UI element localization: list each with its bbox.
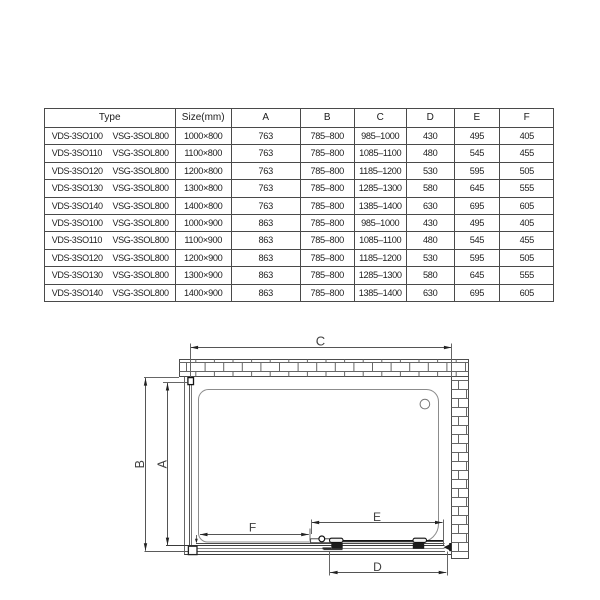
svg-text:B: B [133, 460, 147, 468]
svg-text:E: E [373, 510, 381, 524]
svg-text:A: A [156, 459, 170, 468]
svg-text:C: C [316, 333, 325, 348]
svg-text:D: D [373, 560, 382, 574]
svg-text:F: F [249, 521, 256, 535]
